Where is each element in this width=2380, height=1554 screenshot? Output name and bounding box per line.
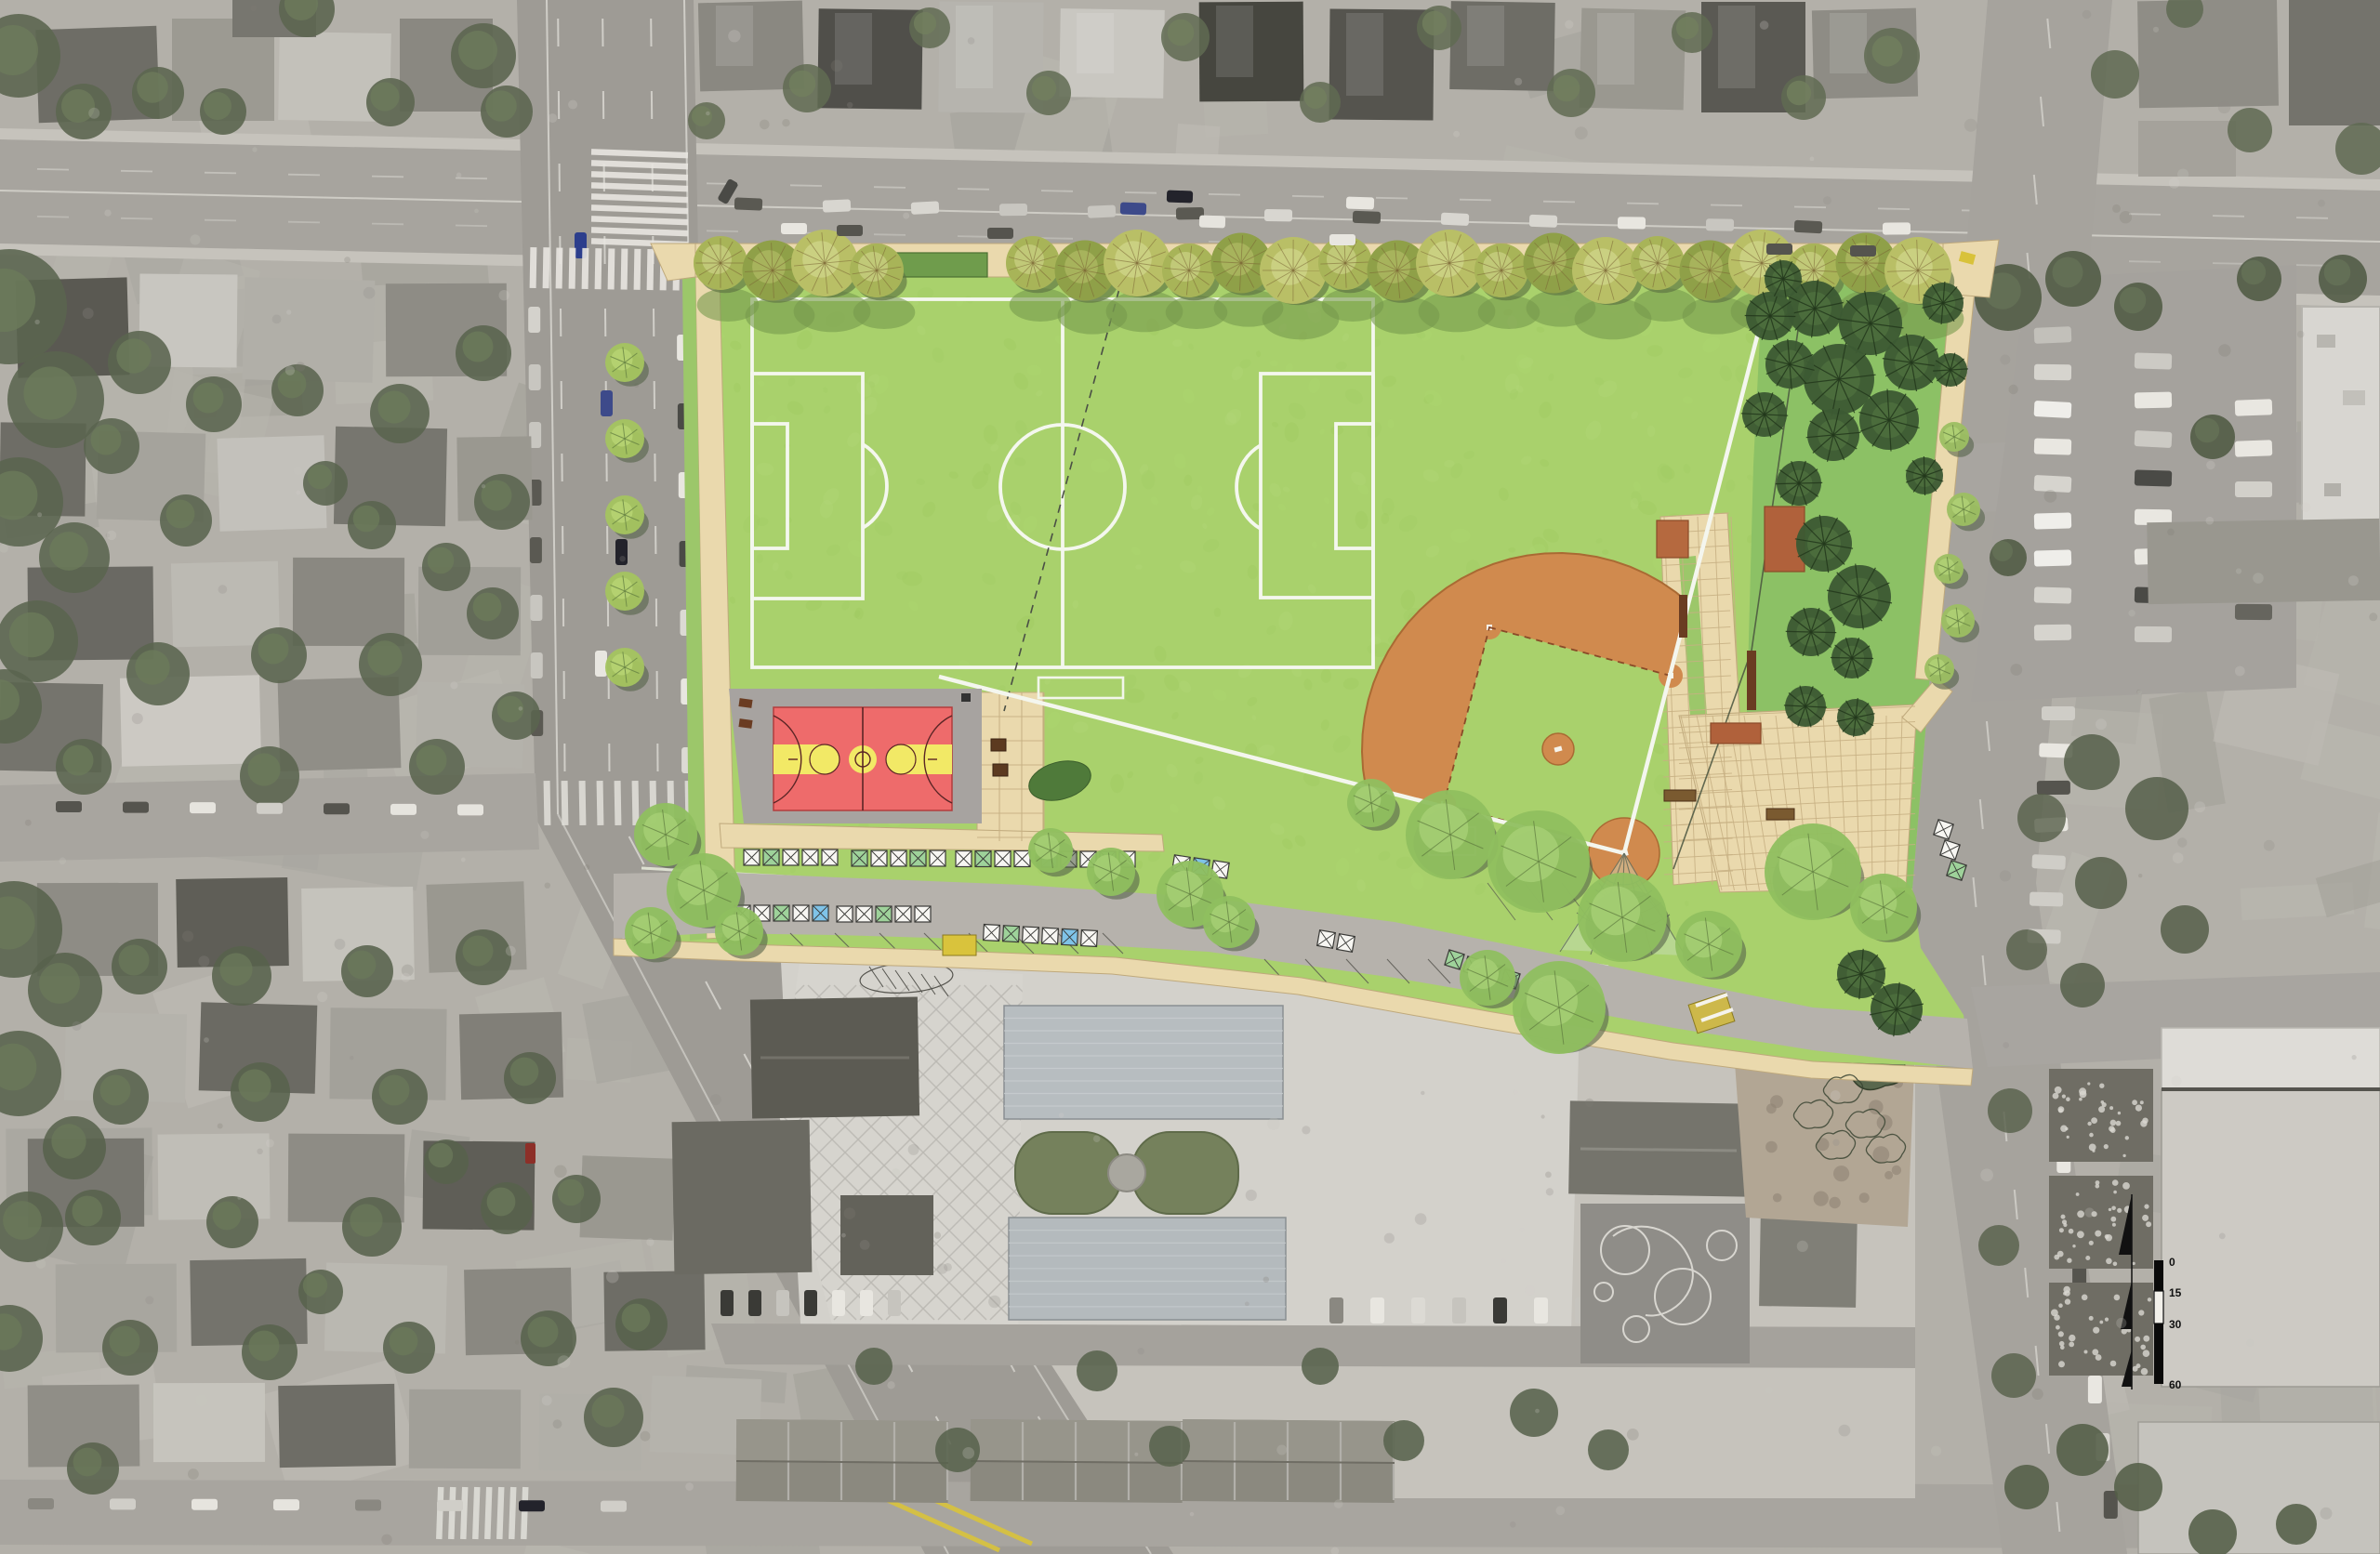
- svg-text:60: 60: [2169, 1378, 2182, 1391]
- svg-text:0: 0: [2169, 1256, 2175, 1269]
- svg-text:15: 15: [2169, 1286, 2182, 1299]
- svg-text:30: 30: [2169, 1318, 2182, 1331]
